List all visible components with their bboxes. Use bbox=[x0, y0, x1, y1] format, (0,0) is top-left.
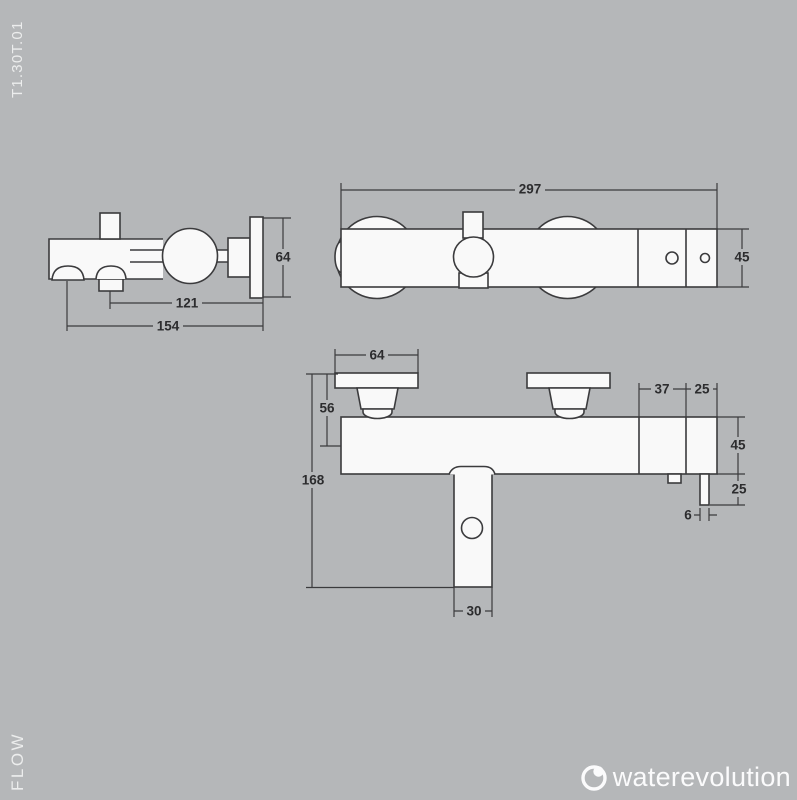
side-dim-121: 121 bbox=[110, 291, 263, 331]
drawing-sheet: T1.30T.01 FLOW bbox=[0, 0, 797, 800]
front-dim-56-label: 56 bbox=[319, 401, 335, 416]
top-dim-297-label: 297 bbox=[519, 182, 542, 197]
front-lever bbox=[700, 474, 709, 505]
front-dim-64: 64 bbox=[335, 347, 418, 373]
front-view: 64 56 168 30 bbox=[298, 347, 750, 619]
front-dim-168-label: 168 bbox=[302, 473, 325, 488]
side-view: 64 121 154 bbox=[49, 213, 294, 334]
side-dim-154: 154 bbox=[67, 281, 263, 334]
front-body bbox=[341, 417, 717, 474]
brand-logo: waterevolution bbox=[579, 762, 791, 793]
front-dim-25-top-label: 25 bbox=[694, 382, 710, 397]
front-dim-30-label: 30 bbox=[466, 604, 481, 619]
front-dim-64-label: 64 bbox=[369, 348, 385, 363]
brand-name: waterevolution bbox=[613, 764, 791, 791]
side-wall-plate bbox=[250, 217, 263, 298]
top-diverter-knob bbox=[463, 212, 483, 238]
side-dim-121-label: 121 bbox=[176, 296, 199, 311]
front-dim-25-lever: 25 bbox=[710, 474, 750, 505]
top-view: 297 45 bbox=[335, 181, 753, 299]
front-dim-45-label: 45 bbox=[730, 438, 746, 453]
front-dim-37-label: 37 bbox=[654, 382, 669, 397]
front-wall-mount-left bbox=[335, 373, 418, 419]
front-dim-6: 6 bbox=[684, 508, 717, 523]
side-dim-64: 64 bbox=[263, 218, 294, 297]
side-dim-64-label: 64 bbox=[275, 250, 291, 265]
front-outlet-tab bbox=[668, 474, 681, 483]
front-dim-6-label: 6 bbox=[684, 508, 692, 523]
front-dim-37-25: 37 25 bbox=[639, 381, 717, 417]
front-spout bbox=[449, 467, 495, 588]
top-body bbox=[341, 229, 717, 287]
technical-drawing: 64 121 154 bbox=[0, 0, 797, 800]
side-handle-ball bbox=[163, 229, 218, 284]
front-dim-25-lever-label: 25 bbox=[731, 482, 747, 497]
top-dim-45: 45 bbox=[717, 229, 753, 287]
top-handle-ball bbox=[454, 237, 494, 277]
side-cartridge-block bbox=[228, 238, 250, 277]
water-drop-ring-icon bbox=[579, 762, 610, 793]
top-dim-45-label: 45 bbox=[734, 250, 750, 265]
front-wall-mount-right bbox=[527, 373, 610, 419]
front-dim-30: 30 bbox=[454, 587, 492, 619]
front-dim-45: 45 bbox=[717, 417, 749, 474]
side-diverter-knob bbox=[100, 213, 120, 239]
side-dim-154-label: 154 bbox=[157, 319, 180, 334]
side-spout-stub bbox=[99, 279, 123, 291]
